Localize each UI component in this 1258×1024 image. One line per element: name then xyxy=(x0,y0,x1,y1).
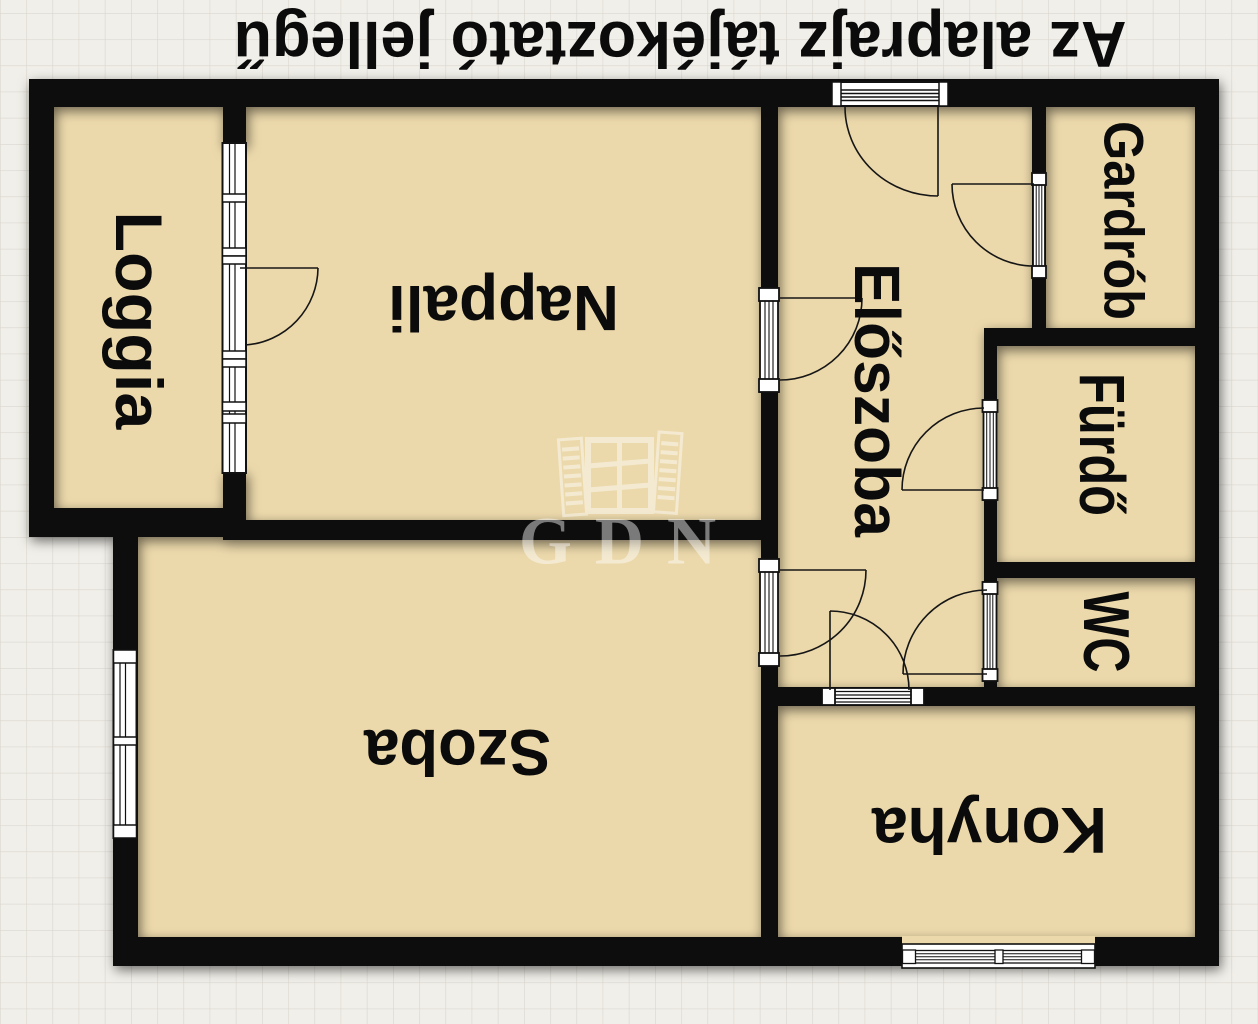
svg-text:Szoba: Szoba xyxy=(363,716,551,789)
svg-text:Fürdő: Fürdő xyxy=(1066,373,1138,516)
svg-text:WC: WC xyxy=(1070,592,1143,673)
svg-text:Az alaprajz tájékoztató jelleg: Az alaprajz tájékoztató jellegű xyxy=(234,8,1127,81)
svg-text:Nappali: Nappali xyxy=(388,272,619,344)
svg-text:Loggia: Loggia xyxy=(102,211,176,430)
svg-text:GDN: GDN xyxy=(519,503,739,579)
svg-text:Gardrób: Gardrób xyxy=(1092,121,1155,320)
svg-text:Konyha: Konyha xyxy=(871,794,1107,867)
svg-text:Előszoba: Előszoba xyxy=(841,263,913,537)
